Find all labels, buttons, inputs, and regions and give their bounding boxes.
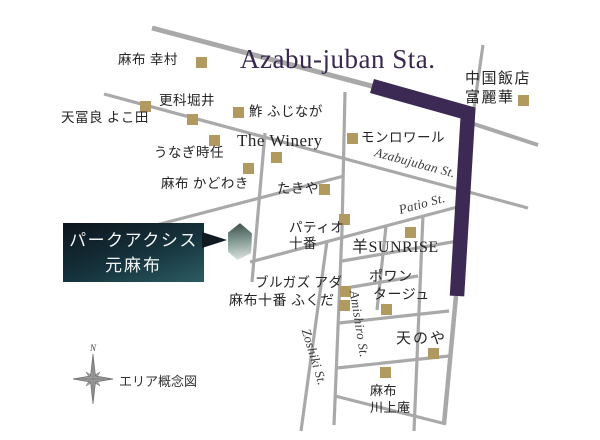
compass-rose-icon: N bbox=[71, 341, 115, 407]
area-map-canvas: Azabu-juban Sta. 麻布 幸村 更科堀井 天冨良 よこ田 鮓 ふじ… bbox=[0, 0, 600, 440]
label-patio-juban-line1: パティオ bbox=[289, 220, 344, 236]
label-takiya: たきや bbox=[277, 181, 319, 197]
place-marker-yokota bbox=[187, 114, 198, 125]
place-marker-kawakamian bbox=[380, 367, 391, 378]
place-marker-yukimura bbox=[196, 57, 207, 68]
place-marker-sunrise bbox=[405, 227, 416, 238]
label-pointage-line2: タージュ bbox=[369, 287, 430, 305]
place-marker-fujinaga bbox=[233, 107, 244, 118]
label-kawakamian-line2: 川上庵 bbox=[370, 399, 411, 416]
place-marker-monloire bbox=[347, 133, 358, 144]
label-pointage: ポワン タージュ bbox=[369, 269, 430, 305]
label-patio-juban: パティオ 十番 bbox=[289, 220, 344, 251]
place-marker-takiya bbox=[319, 184, 330, 195]
label-kawakamian: 麻布 川上庵 bbox=[370, 382, 411, 416]
label-the-winery: The Winery bbox=[237, 131, 323, 151]
property-name-line1: パークアクシス bbox=[63, 228, 204, 253]
label-yokota: 天冨良 よこ田 bbox=[61, 110, 149, 126]
label-bulgaz: ブルガズ アダ bbox=[255, 275, 342, 291]
label-yukimura: 麻布 幸村 bbox=[118, 52, 178, 68]
label-sarashina: 更科堀井 bbox=[159, 93, 215, 109]
label-chugoku-line2: 富麗華 bbox=[465, 89, 531, 108]
area-caption: エリア概念図 bbox=[119, 371, 197, 390]
callout-pointer-icon bbox=[202, 232, 227, 248]
label-chugoku-hanten: 中国飯店 富麗華 bbox=[465, 70, 531, 108]
label-unagi: うなぎ時任 bbox=[154, 145, 224, 161]
property-name-box: パークアクシス 元麻布 bbox=[63, 223, 204, 282]
label-fukuda: 麻布十番 ふくだ bbox=[229, 294, 335, 310]
label-chugoku-line1: 中国飯店 bbox=[465, 70, 531, 89]
label-amanoya: 天のや bbox=[396, 331, 447, 348]
property-name-line2: 元麻布 bbox=[63, 253, 204, 278]
compass-north-label: N bbox=[89, 343, 97, 353]
label-pointage-line1: ポワン bbox=[369, 269, 430, 287]
label-patio-juban-line2: 十番 bbox=[289, 236, 344, 252]
station-title: Azabu-juban Sta. bbox=[240, 44, 435, 75]
place-marker-pointage bbox=[381, 304, 392, 315]
label-kawakamian-line1: 麻布 bbox=[370, 382, 411, 399]
label-monloire: モンロワール bbox=[361, 130, 445, 146]
place-marker-kadowaki bbox=[243, 163, 254, 174]
place-marker-amanoya bbox=[428, 348, 439, 359]
label-sunrise: 羊SUNRISE bbox=[352, 239, 439, 257]
label-kadowaki: 麻布 かどわき bbox=[161, 176, 249, 192]
label-fujinaga: 鮓 ふじなが bbox=[249, 104, 323, 120]
place-marker-winery bbox=[271, 152, 282, 163]
